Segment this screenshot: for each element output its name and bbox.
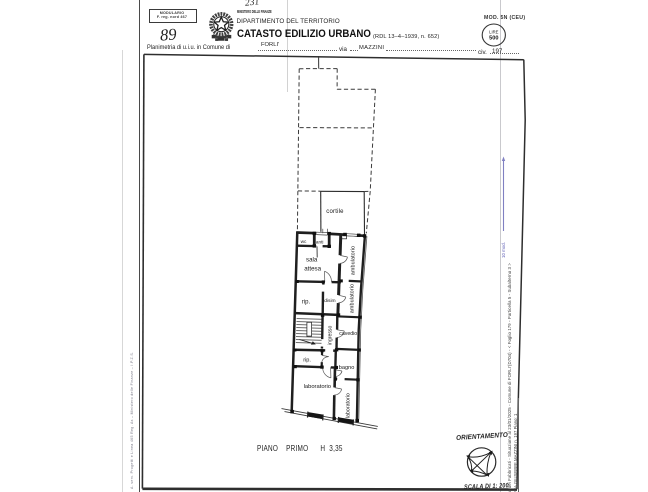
svg-text:attesa: attesa bbox=[304, 266, 321, 273]
svg-text:ambulatorio: ambulatorio bbox=[350, 284, 356, 313]
svg-text:bagno: bagno bbox=[339, 365, 355, 371]
svg-text:10 mod.: 10 mod. bbox=[501, 242, 506, 258]
svg-text:ingresso: ingresso bbox=[328, 325, 334, 345]
svg-text:wc: wc bbox=[301, 240, 307, 245]
svg-text:ambulatorio: ambulatorio bbox=[351, 246, 357, 275]
svg-text:rip.: rip. bbox=[302, 300, 311, 306]
svg-text:anti: anti bbox=[316, 239, 324, 244]
svg-text:disim: disim bbox=[324, 298, 335, 304]
svg-text:cortile: cortile bbox=[326, 209, 344, 215]
svg-text:laboratorio: laboratorio bbox=[304, 384, 331, 390]
svg-text:cavedio: cavedio bbox=[339, 331, 357, 337]
svg-text:sala: sala bbox=[306, 257, 318, 264]
svg-text:rip.: rip. bbox=[303, 358, 311, 364]
svg-text:laboratorio: laboratorio bbox=[345, 393, 351, 418]
